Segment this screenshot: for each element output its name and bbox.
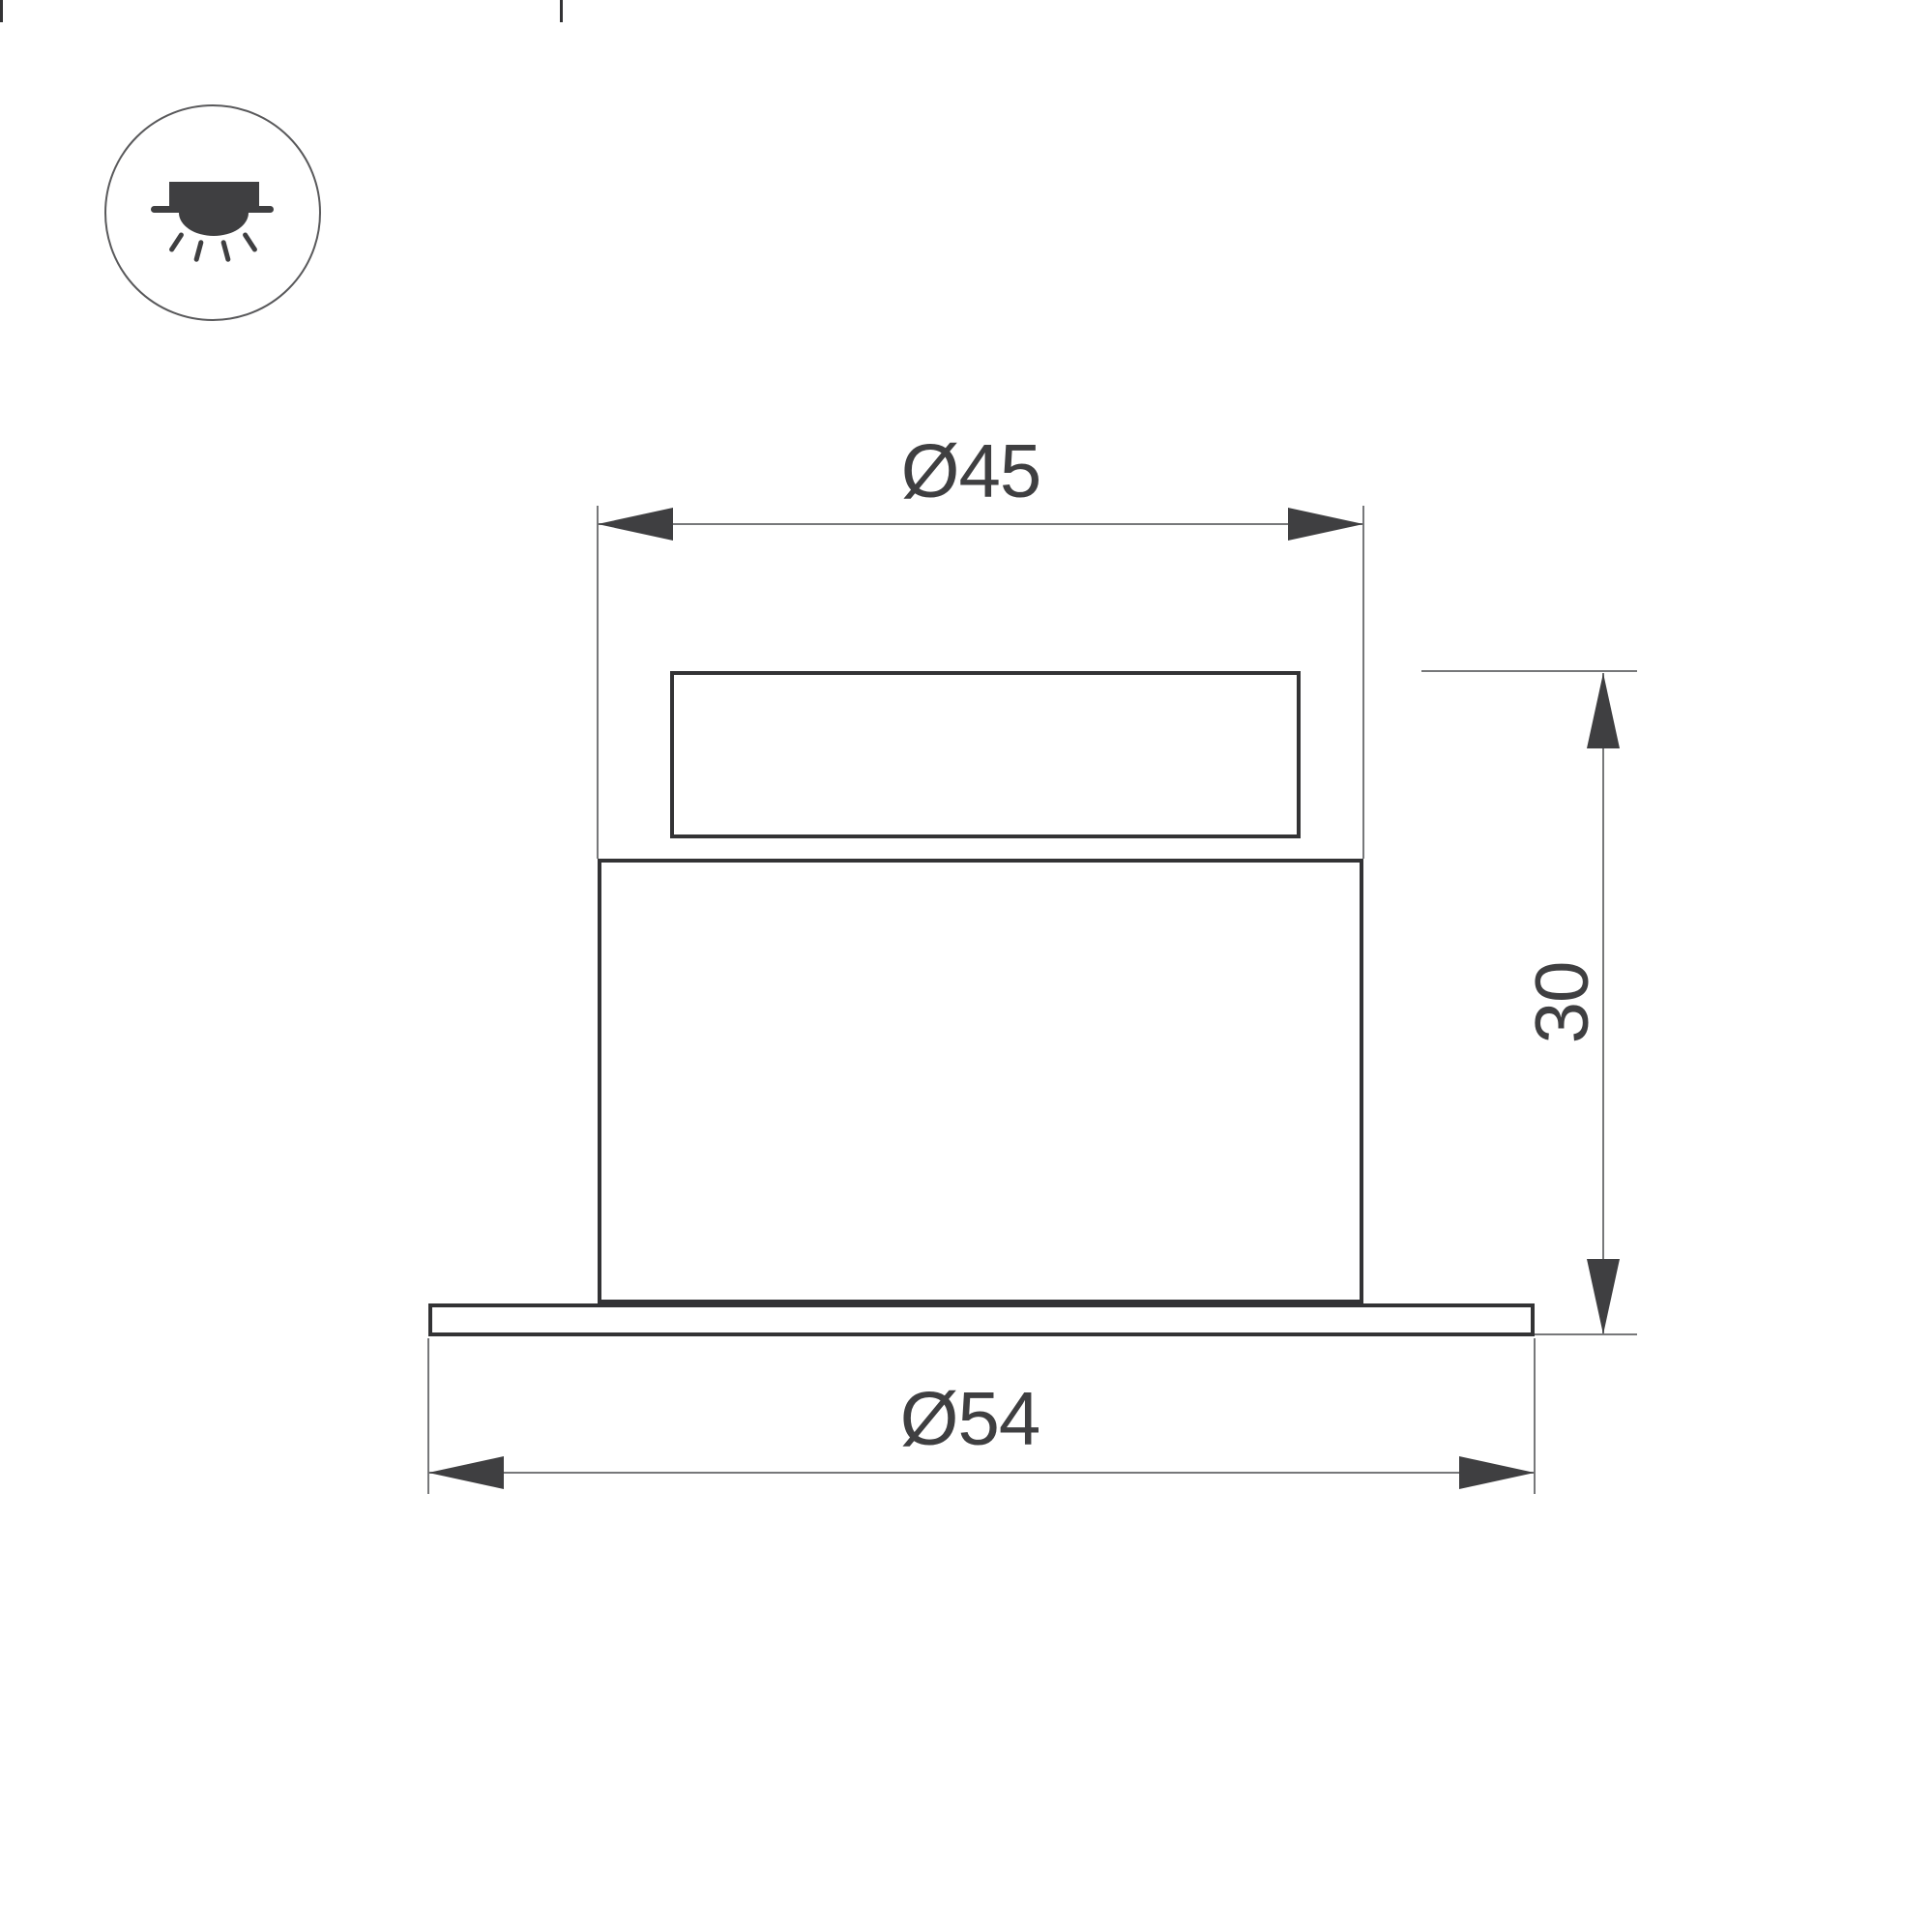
dim45-extension-line-right (1362, 506, 1364, 859)
dim54-arrow-right (1459, 1456, 1535, 1489)
recessed-downlight-icon (169, 182, 259, 209)
light-ray-icon (242, 231, 258, 252)
dim45-dimension-line (598, 523, 1363, 525)
light-ray-icon (168, 231, 185, 252)
dim45-arrow-right (1288, 508, 1363, 541)
dim30-reference-line-bottom (1535, 1333, 1637, 1335)
fixture-neck (0, 0, 563, 22)
dim45-arrow-left (598, 508, 673, 541)
dim30-reference-line-top (1421, 670, 1637, 672)
technical-dimension-drawing: Ø45 Ø54 30 (0, 0, 1932, 1932)
dim30-arrow-up (1587, 673, 1620, 748)
fixture-heatsink-block (670, 671, 1301, 838)
dim54-dimension-line (428, 1472, 1535, 1474)
light-ray-icon (193, 240, 204, 263)
dim45-extension-line-left (597, 506, 599, 859)
fixture-flange (428, 1303, 1535, 1336)
dim30-arrow-down (1587, 1259, 1620, 1334)
dim54-label: Ø54 (900, 1375, 1039, 1463)
fixture-body (598, 859, 1363, 1303)
dim45-label: Ø45 (901, 427, 1040, 515)
dim54-arrow-left (428, 1456, 504, 1489)
dim30-label: 30 (1518, 962, 1606, 1044)
light-ray-icon (220, 240, 231, 263)
downlight-lens-glyph (179, 213, 249, 236)
mount-type-badge (104, 104, 321, 321)
downlight-flange-glyph (151, 206, 274, 213)
